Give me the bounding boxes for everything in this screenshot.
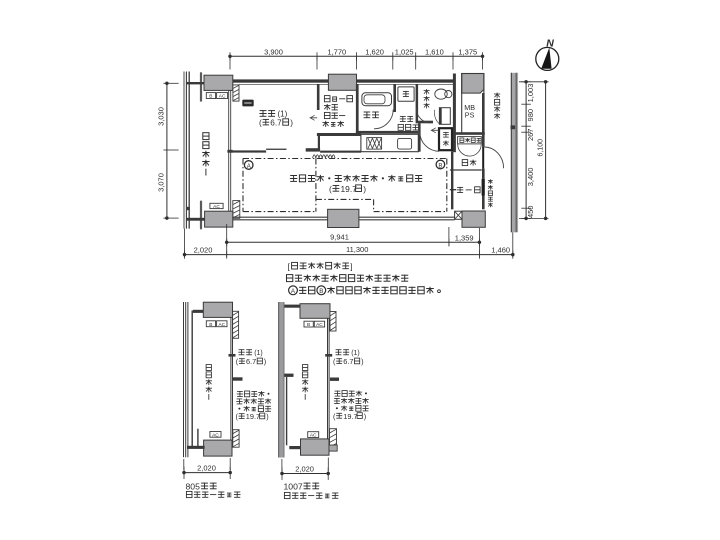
svg-text:N: N bbox=[546, 37, 554, 49]
svg-text:6.7: 6.7 bbox=[343, 357, 353, 366]
svg-text:805: 805 bbox=[186, 482, 201, 492]
svg-text:PS: PS bbox=[465, 110, 475, 119]
svg-text:267: 267 bbox=[526, 129, 535, 142]
svg-text:AC: AC bbox=[218, 322, 225, 328]
svg-text:2,020: 2,020 bbox=[197, 464, 216, 473]
svg-text:1,375: 1,375 bbox=[458, 47, 477, 56]
svg-text:(: ( bbox=[329, 184, 332, 194]
svg-text:6,100: 6,100 bbox=[538, 139, 545, 157]
svg-text:19.7: 19.7 bbox=[246, 412, 260, 421]
svg-text:AC: AC bbox=[213, 204, 220, 210]
svg-text:2,020: 2,020 bbox=[194, 246, 213, 255]
svg-text:1,610: 1,610 bbox=[425, 47, 444, 56]
svg-text:9,941: 9,941 bbox=[330, 233, 349, 242]
svg-text:B: B bbox=[307, 322, 310, 328]
svg-text:450: 450 bbox=[526, 206, 535, 219]
svg-text:(1): (1) bbox=[278, 110, 288, 119]
svg-text:19.7: 19.7 bbox=[341, 184, 358, 194]
svg-text:B: B bbox=[209, 94, 212, 100]
svg-text:B: B bbox=[438, 163, 442, 169]
svg-text:A: A bbox=[247, 164, 251, 170]
svg-text:3,400: 3,400 bbox=[526, 168, 535, 187]
svg-text:(: ( bbox=[259, 119, 262, 128]
svg-text:3,900: 3,900 bbox=[264, 47, 283, 56]
svg-text:3,070: 3,070 bbox=[157, 173, 166, 192]
svg-text:1,460: 1,460 bbox=[491, 245, 510, 254]
svg-text:1,359: 1,359 bbox=[455, 234, 474, 243]
svg-text:): ) bbox=[264, 357, 266, 366]
svg-text:(1): (1) bbox=[351, 350, 360, 357]
svg-text:B: B bbox=[209, 322, 212, 328]
svg-text:(1): (1) bbox=[254, 350, 263, 357]
svg-text:AC: AC bbox=[310, 433, 317, 439]
svg-text:980: 980 bbox=[526, 109, 535, 122]
svg-text:AC: AC bbox=[212, 432, 219, 438]
svg-text:AC: AC bbox=[219, 94, 226, 100]
svg-text:6.7: 6.7 bbox=[246, 357, 256, 366]
svg-text:]: ] bbox=[350, 261, 352, 271]
svg-text:1,770: 1,770 bbox=[327, 47, 346, 56]
svg-text:): ) bbox=[361, 357, 363, 366]
svg-text:19.7: 19.7 bbox=[343, 412, 357, 421]
svg-text:1,025: 1,025 bbox=[395, 47, 414, 56]
svg-text:1007: 1007 bbox=[284, 482, 303, 492]
svg-text:2,020: 2,020 bbox=[295, 464, 314, 473]
svg-text:): ) bbox=[266, 412, 268, 421]
svg-text:B: B bbox=[319, 288, 323, 295]
svg-text:1,003: 1,003 bbox=[526, 84, 535, 103]
svg-text:AC: AC bbox=[316, 322, 323, 328]
svg-text:): ) bbox=[364, 412, 366, 421]
svg-text:): ) bbox=[290, 119, 293, 128]
svg-text:11,300: 11,300 bbox=[346, 245, 368, 254]
svg-text:): ) bbox=[363, 184, 366, 194]
svg-text:6.7: 6.7 bbox=[270, 119, 282, 128]
svg-text:1,620: 1,620 bbox=[365, 47, 384, 56]
svg-text:3,030: 3,030 bbox=[157, 107, 166, 126]
